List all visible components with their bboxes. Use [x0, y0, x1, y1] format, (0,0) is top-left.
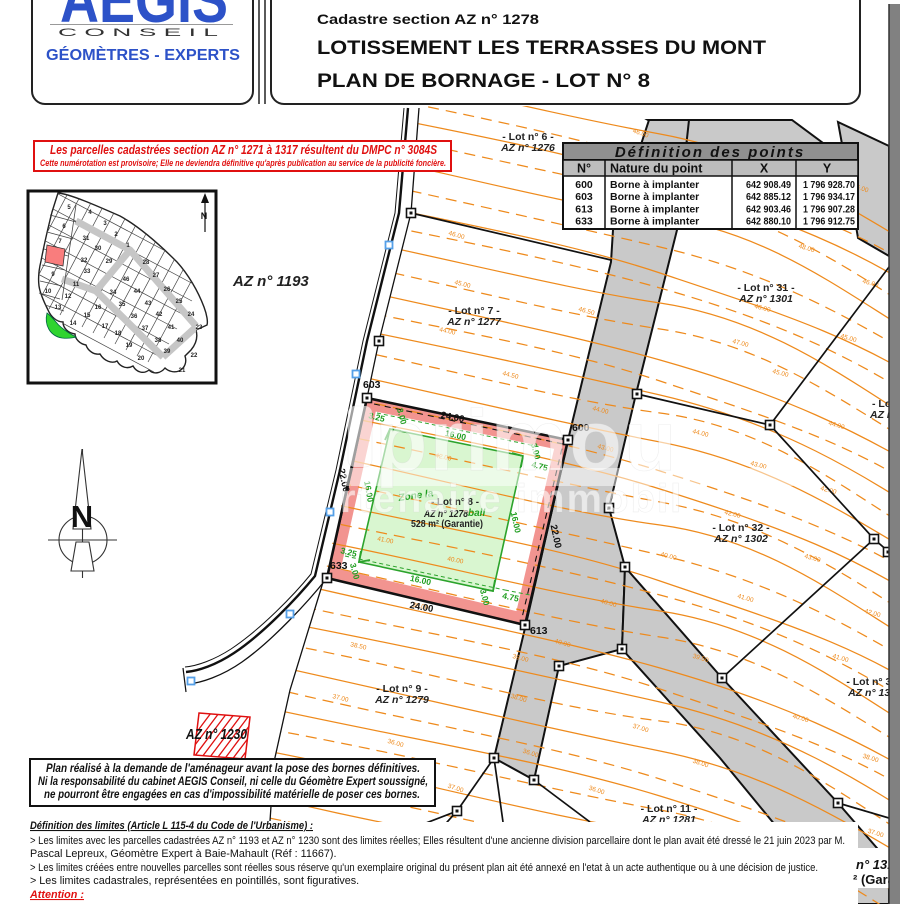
- svg-text:AZ n° 1230: AZ n° 1230: [185, 727, 247, 743]
- svg-text:18: 18: [115, 331, 122, 337]
- svg-text:39: 39: [164, 349, 171, 355]
- svg-text:21: 21: [179, 368, 186, 374]
- svg-text:> Les limites cadastrales, rep: > Les limites cadastrales, représentées …: [30, 875, 359, 887]
- svg-text:Cette numérotation est proviso: Cette numérotation est provisoire; Elle …: [40, 158, 446, 168]
- svg-text:Borne à implanter: Borne à implanter: [610, 191, 699, 203]
- svg-text:1 796 934.17: 1 796 934.17: [803, 191, 855, 203]
- svg-text:46: 46: [123, 277, 130, 283]
- svg-text:13: 13: [55, 305, 62, 311]
- svg-text:11: 11: [73, 282, 80, 288]
- svg-text:Les parcelles cadastrées secti: Les parcelles cadastrées section AZ n° 1…: [50, 143, 438, 157]
- svg-text:25: 25: [176, 299, 183, 305]
- svg-text:N°: N°: [577, 162, 591, 176]
- svg-text:Borne à implanter: Borne à implanter: [610, 179, 699, 191]
- svg-text:AZ n° 1193: AZ n° 1193: [232, 273, 309, 290]
- svg-text:1 796 907.28: 1 796 907.28: [803, 203, 855, 215]
- svg-text:Définition des points: Définition des points: [615, 144, 805, 161]
- svg-text:AZ n° 1279: AZ n° 1279: [374, 694, 429, 706]
- svg-text:40: 40: [177, 338, 184, 344]
- svg-text:> Les limites avec les parcell: > Les limites avec les parcelles cadastr…: [30, 835, 845, 847]
- svg-text:10: 10: [45, 289, 52, 295]
- svg-text:30: 30: [95, 246, 102, 252]
- svg-text:36: 36: [131, 314, 138, 320]
- svg-text:34: 34: [110, 290, 117, 296]
- svg-text:LOTISSEMENT LES TERRASSES DU M: LOTISSEMENT LES TERRASSES DU MONT: [317, 37, 766, 59]
- svg-text:> Les limites créées entre nou: > Les limites créées entre nouvelles par…: [30, 862, 818, 874]
- svg-text:Définition des limites (Articl: Définition des limites (Article L 115-4 …: [30, 820, 313, 832]
- svg-text:rtenaire immobil: rtenaire immobil: [340, 477, 683, 521]
- svg-text:642 908.49: 642 908.49: [746, 179, 791, 191]
- svg-text:31: 31: [83, 236, 90, 242]
- svg-text:Ni la responsabilité du cabine: Ni la responsabilité du cabinet AEGIS Co…: [38, 776, 428, 788]
- svg-text:35: 35: [119, 302, 126, 308]
- svg-text:28: 28: [143, 260, 150, 266]
- svg-text:AZ n° 1276: AZ n° 1276: [500, 142, 555, 154]
- svg-text:X: X: [760, 162, 769, 176]
- svg-text:Attention :: Attention :: [29, 889, 84, 901]
- svg-text:1 796 912.75: 1 796 912.75: [803, 216, 855, 228]
- svg-text:613: 613: [575, 203, 593, 215]
- svg-text:C O N S E I L: C O N S E I L: [58, 27, 218, 39]
- svg-text:Borne à implanter: Borne à implanter: [610, 216, 699, 228]
- svg-text:44: 44: [134, 289, 141, 295]
- svg-text:N: N: [201, 211, 208, 221]
- svg-text:613: 613: [530, 625, 548, 637]
- svg-text:24: 24: [188, 312, 195, 318]
- svg-text:27: 27: [153, 273, 160, 279]
- svg-text:12: 12: [65, 294, 72, 300]
- svg-text:22: 22: [191, 353, 198, 359]
- svg-text:Pascal Lepreux, Géomètre Exper: Pascal Lepreux, Géomètre Expert à Baie-M…: [30, 848, 336, 860]
- svg-text:603: 603: [575, 191, 593, 203]
- svg-text:37: 37: [142, 326, 149, 332]
- svg-text:AZ n° 1277: AZ n° 1277: [446, 316, 502, 328]
- svg-text:ne pourront être engagées en c: ne pourront être engagées en cas d'impos…: [44, 789, 420, 801]
- svg-text:Cadastre section AZ n° 1278: Cadastre section AZ n° 1278: [317, 11, 539, 27]
- svg-text:1 796 928.70: 1 796 928.70: [803, 179, 855, 191]
- svg-text:primou: primou: [375, 393, 678, 489]
- svg-text:43: 43: [145, 301, 152, 307]
- svg-text:633: 633: [330, 560, 348, 572]
- svg-text:600: 600: [575, 179, 593, 191]
- svg-text:14: 14: [70, 321, 77, 327]
- svg-text:33: 33: [84, 269, 91, 275]
- svg-text:16: 16: [95, 305, 102, 311]
- svg-text:38: 38: [155, 338, 162, 344]
- svg-text:642 880.10: 642 880.10: [746, 216, 791, 228]
- svg-text:642 885.12: 642 885.12: [746, 191, 791, 203]
- svg-text:20: 20: [138, 356, 145, 362]
- svg-text:15: 15: [84, 313, 91, 319]
- svg-text:Plan réalisé à la demande de l: Plan réalisé à la demande de l'aménageur…: [46, 763, 420, 775]
- svg-text:32: 32: [81, 258, 88, 264]
- svg-text:642 903.46: 642 903.46: [746, 203, 791, 215]
- svg-text:19: 19: [126, 343, 133, 349]
- svg-text:AZ n° 1302: AZ n° 1302: [713, 533, 768, 545]
- svg-text:Borne à implanter: Borne à implanter: [610, 203, 699, 215]
- svg-text:N: N: [71, 499, 93, 534]
- svg-text:26: 26: [164, 287, 171, 293]
- svg-text:PLAN DE BORNAGE - LOT N° 8: PLAN DE BORNAGE - LOT N° 8: [317, 70, 650, 92]
- svg-text:Nature du point: Nature du point: [610, 162, 703, 176]
- svg-text:29: 29: [106, 259, 113, 265]
- svg-text:42: 42: [156, 312, 163, 318]
- svg-text:Y: Y: [823, 162, 832, 176]
- svg-text:GÉOMÈTRES - EXPERTS: GÉOMÈTRES - EXPERTS: [46, 45, 240, 64]
- svg-text:AZ n° 1301: AZ n° 1301: [738, 293, 793, 305]
- svg-text:17: 17: [102, 324, 109, 330]
- svg-text:603: 603: [363, 379, 381, 391]
- svg-text:41: 41: [168, 325, 175, 331]
- svg-text:23: 23: [196, 325, 203, 331]
- svg-text:633: 633: [575, 216, 593, 228]
